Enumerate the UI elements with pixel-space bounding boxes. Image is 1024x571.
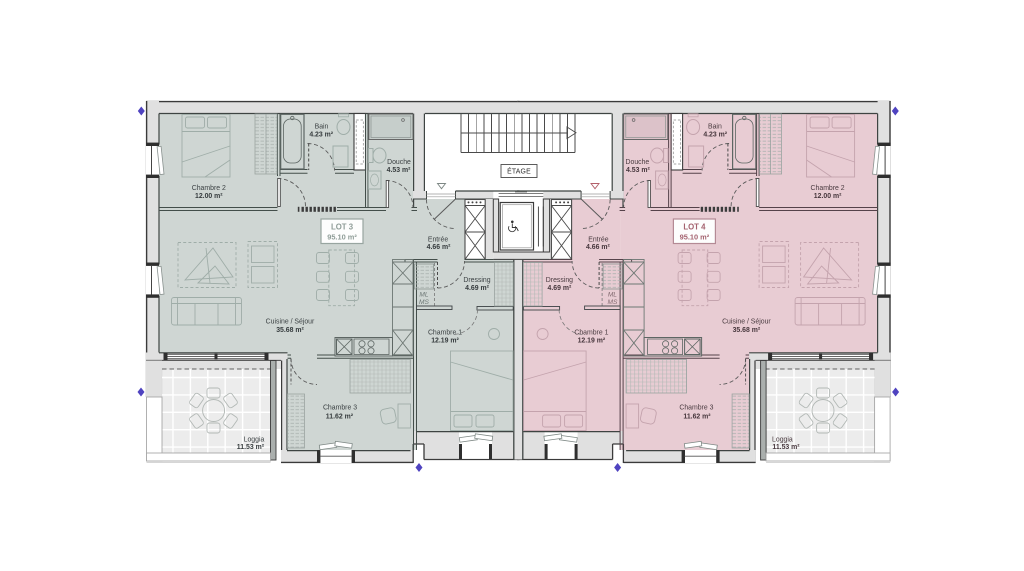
svg-text:95.10 m²: 95.10 m² (327, 233, 357, 242)
svg-text:Chambre 3: Chambre 3 (679, 405, 713, 412)
svg-text:11.62 m²: 11.62 m² (683, 414, 711, 421)
svg-text:11.62 m²: 11.62 m² (326, 414, 354, 421)
svg-text:12.00 m²: 12.00 m² (195, 193, 223, 200)
svg-text:Chambre 1: Chambre 1 (428, 330, 462, 337)
svg-text:Bain: Bain (708, 124, 722, 131)
svg-text:Douche: Douche (626, 159, 650, 166)
svg-text:4.69 m²: 4.69 m² (548, 285, 572, 292)
svg-text:4.53 m²: 4.53 m² (387, 167, 411, 174)
svg-text:4.66 m²: 4.66 m² (586, 244, 610, 251)
svg-text:11.53 m²: 11.53 m² (772, 444, 800, 451)
svg-text:12.00 m²: 12.00 m² (814, 193, 842, 200)
svg-text:4.69 m²: 4.69 m² (465, 285, 489, 292)
svg-text:Cuisine / Séjour: Cuisine / Séjour (722, 319, 771, 326)
svg-text:Dressing: Dressing (546, 277, 573, 284)
svg-text:ML: ML (419, 292, 428, 299)
svg-text:MS: MS (419, 299, 429, 306)
svg-text:Chambre 1: Chambre 1 (574, 330, 608, 337)
svg-text:LOT 4: LOT 4 (683, 223, 706, 232)
svg-text:35.68 m²: 35.68 m² (733, 327, 761, 334)
svg-text:Dressing: Dressing (463, 277, 490, 284)
svg-text:4.66 m²: 4.66 m² (427, 244, 451, 251)
svg-text:4.23 m²: 4.23 m² (309, 132, 333, 139)
svg-text:4.53 m²: 4.53 m² (626, 167, 650, 174)
svg-text:Loggia: Loggia (244, 437, 265, 444)
svg-text:ML: ML (608, 292, 617, 299)
svg-text:Chambre 3: Chambre 3 (323, 405, 357, 412)
svg-text:Entrée: Entrée (588, 237, 608, 244)
svg-text:Bain: Bain (315, 124, 329, 131)
svg-text:MS: MS (607, 299, 617, 306)
svg-text:Chambre 2: Chambre 2 (192, 185, 226, 192)
svg-text:Chambre 2: Chambre 2 (811, 185, 845, 192)
svg-text:4.23 m²: 4.23 m² (703, 132, 727, 139)
svg-text:Entrée: Entrée (428, 237, 448, 244)
svg-text:Douche: Douche (387, 159, 411, 166)
svg-text:12.19 m²: 12.19 m² (578, 338, 606, 345)
svg-text:12.19 m²: 12.19 m² (431, 338, 459, 345)
svg-text:35.68 m²: 35.68 m² (276, 327, 304, 334)
svg-text:95.10 m²: 95.10 m² (680, 233, 710, 242)
svg-text:LOT 3: LOT 3 (331, 223, 354, 232)
svg-text:ÉTAGE: ÉTAGE (507, 166, 531, 175)
svg-text:Cuisine / Séjour: Cuisine / Séjour (266, 319, 315, 326)
svg-text:11.53 m²: 11.53 m² (237, 444, 265, 451)
svg-text:Loggia: Loggia (772, 437, 793, 444)
